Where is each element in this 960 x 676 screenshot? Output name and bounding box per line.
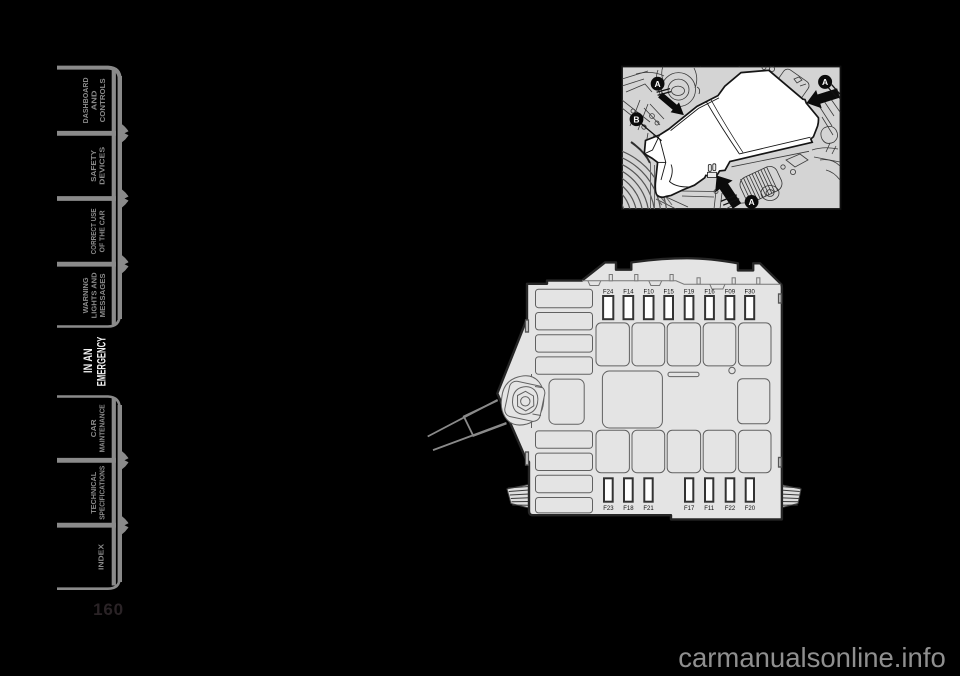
svg-text:MESSAGES: MESSAGES (100, 273, 107, 317)
svg-text:F18: F18 (623, 506, 634, 512)
svg-text:MAINTENANCE: MAINTENANCE (100, 404, 107, 452)
svg-text:F14: F14 (623, 290, 634, 296)
svg-text:SAFETY: SAFETY (91, 150, 98, 182)
svg-text:F11: F11 (704, 506, 715, 512)
svg-text:F22: F22 (725, 506, 736, 512)
svg-text:B: B (633, 114, 639, 124)
svg-text:AND: AND (92, 90, 99, 110)
svg-text:F23: F23 (603, 506, 614, 512)
svg-text:OF THE CAR: OF THE CAR (100, 210, 107, 252)
svg-text:F10: F10 (644, 290, 655, 296)
svg-text:A: A (655, 79, 661, 89)
svg-text:DEVICES: DEVICES (100, 146, 107, 184)
svg-text:F15: F15 (664, 290, 675, 296)
svg-text:F20: F20 (745, 506, 756, 512)
svg-text:INDEX: INDEX (98, 544, 105, 570)
svg-text:SPECIFICATIONS: SPECIFICATIONS (100, 466, 107, 520)
svg-text:CONTROLS: CONTROLS (100, 78, 107, 122)
svg-text:CAR: CAR (91, 419, 98, 437)
svg-text:F24: F24 (603, 290, 614, 296)
svg-text:IN AN: IN AN (81, 348, 95, 373)
svg-text:LIGHTS AND: LIGHTS AND (92, 272, 99, 318)
svg-text:F16: F16 (704, 290, 715, 296)
svg-text:DASHBOARD: DASHBOARD (83, 77, 90, 123)
svg-text:F30: F30 (745, 290, 756, 296)
svg-text:160: 160 (93, 600, 124, 619)
svg-text:carmanualsonline.info: carmanualsonline.info (678, 642, 946, 673)
svg-text:F21: F21 (643, 506, 654, 512)
svg-text:TECHNICAL: TECHNICAL (91, 471, 98, 514)
svg-text:EMERGENCY: EMERGENCY (94, 337, 108, 387)
svg-text:F09: F09 (725, 290, 736, 296)
svg-text:F17: F17 (684, 506, 695, 512)
svg-text:A: A (749, 197, 755, 207)
svg-text:F19: F19 (684, 290, 695, 296)
svg-text:CORRECT USE: CORRECT USE (91, 208, 98, 254)
svg-text:WARNING: WARNING (83, 277, 90, 314)
svg-text:A: A (822, 77, 828, 87)
